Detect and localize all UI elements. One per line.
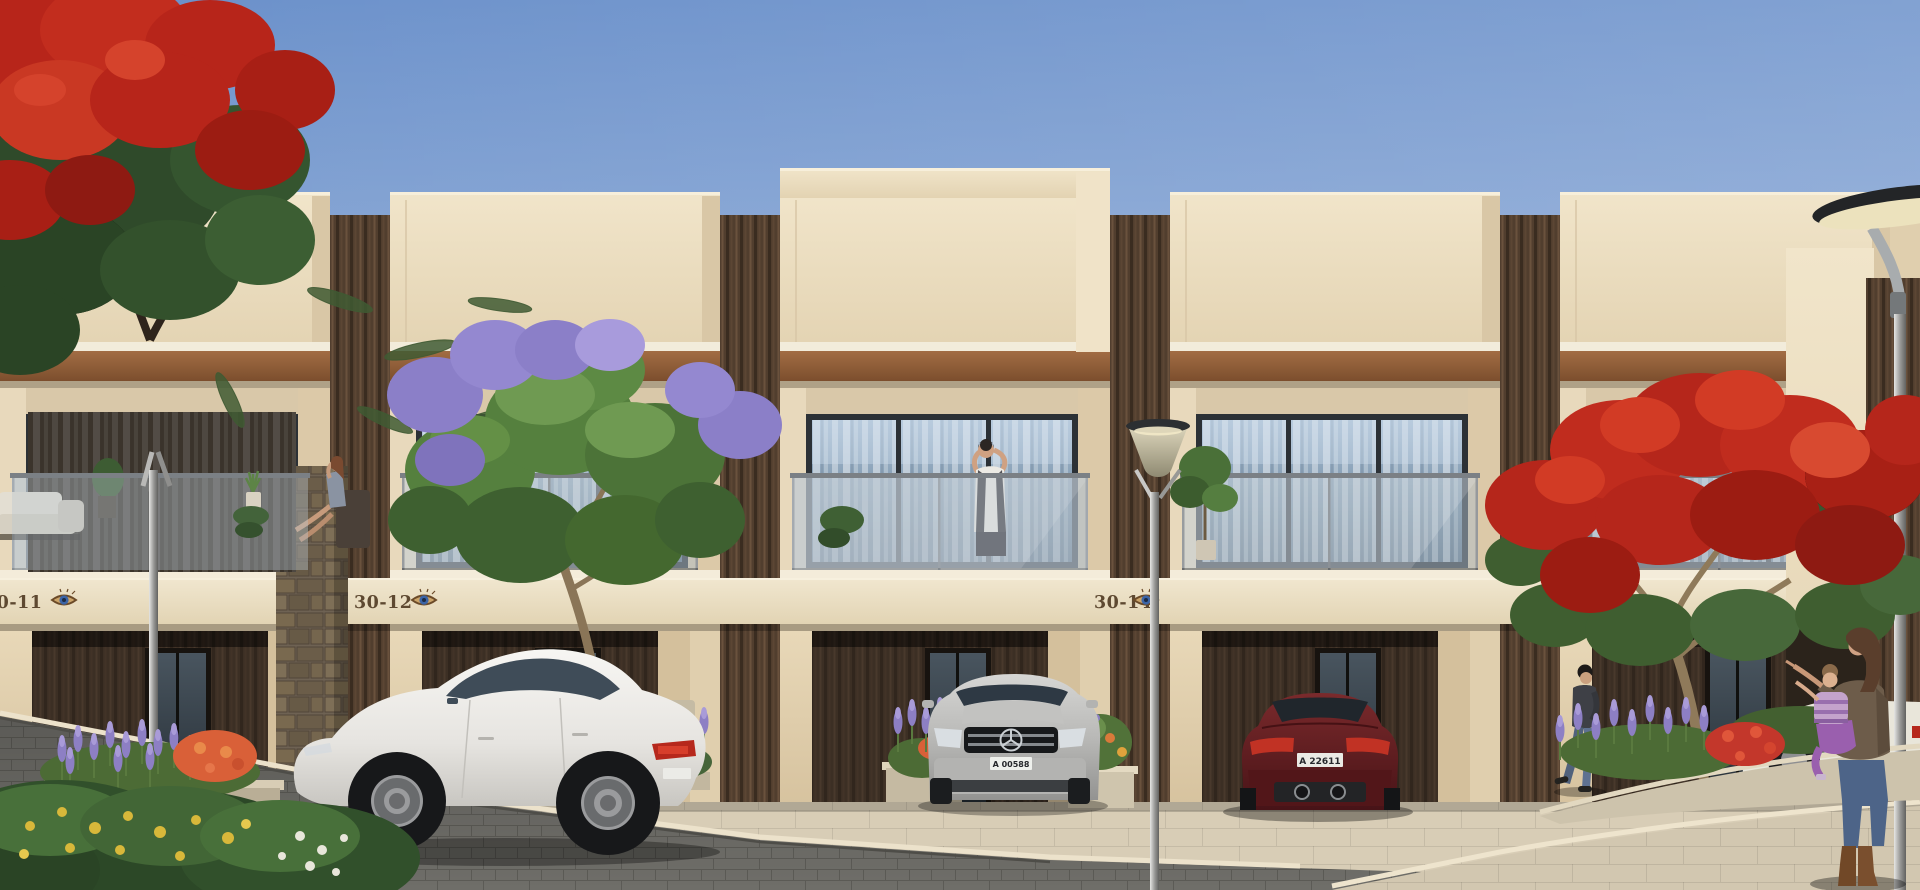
child-pants xyxy=(1816,720,1856,754)
svg-text:A 00588: A 00588 xyxy=(993,760,1030,769)
architectural-render: 30-11 30-12 30-14 xyxy=(0,0,1920,890)
plaque-label: 30-11 xyxy=(0,593,42,613)
orange-flowers xyxy=(173,730,257,782)
unit-plaque-3: 30-14 xyxy=(1094,589,1158,613)
svg-text:A 22611: A 22611 xyxy=(1299,757,1340,767)
child-head xyxy=(1823,673,1838,688)
plaque-label: 30-12 xyxy=(354,593,412,613)
